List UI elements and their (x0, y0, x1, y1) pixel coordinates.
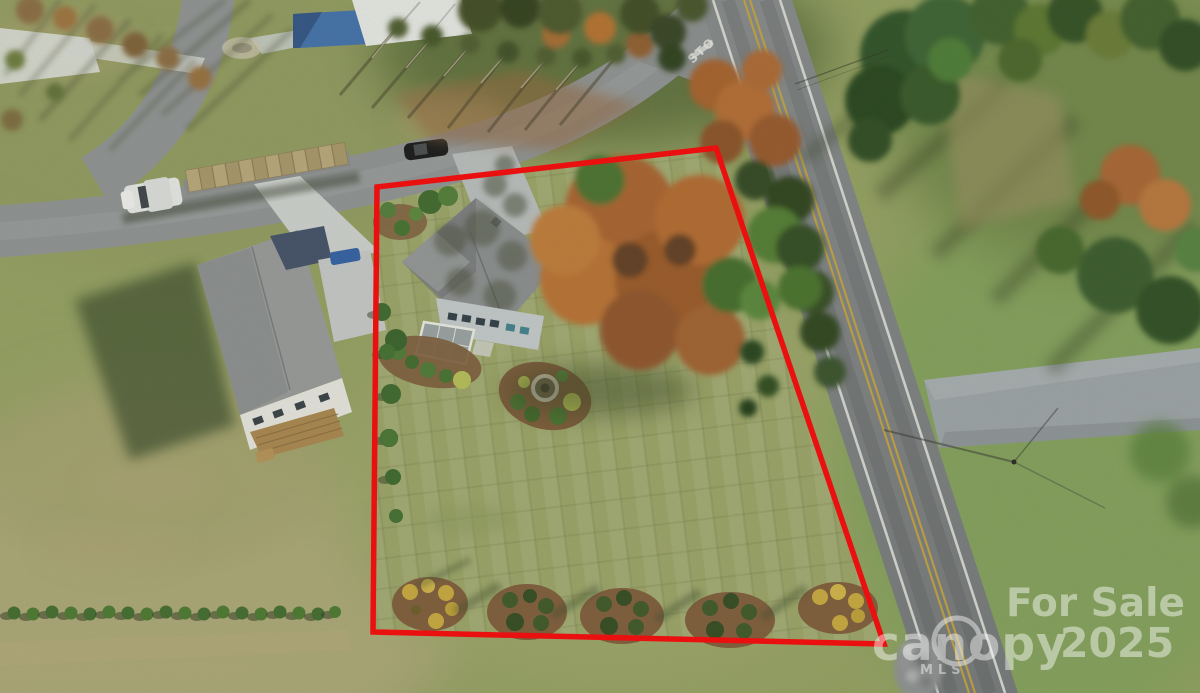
watermark-year: 2025 (1060, 619, 1174, 667)
aerial-photo: STOP (0, 0, 1200, 693)
watermark-brand-sub: MLS (920, 663, 966, 678)
